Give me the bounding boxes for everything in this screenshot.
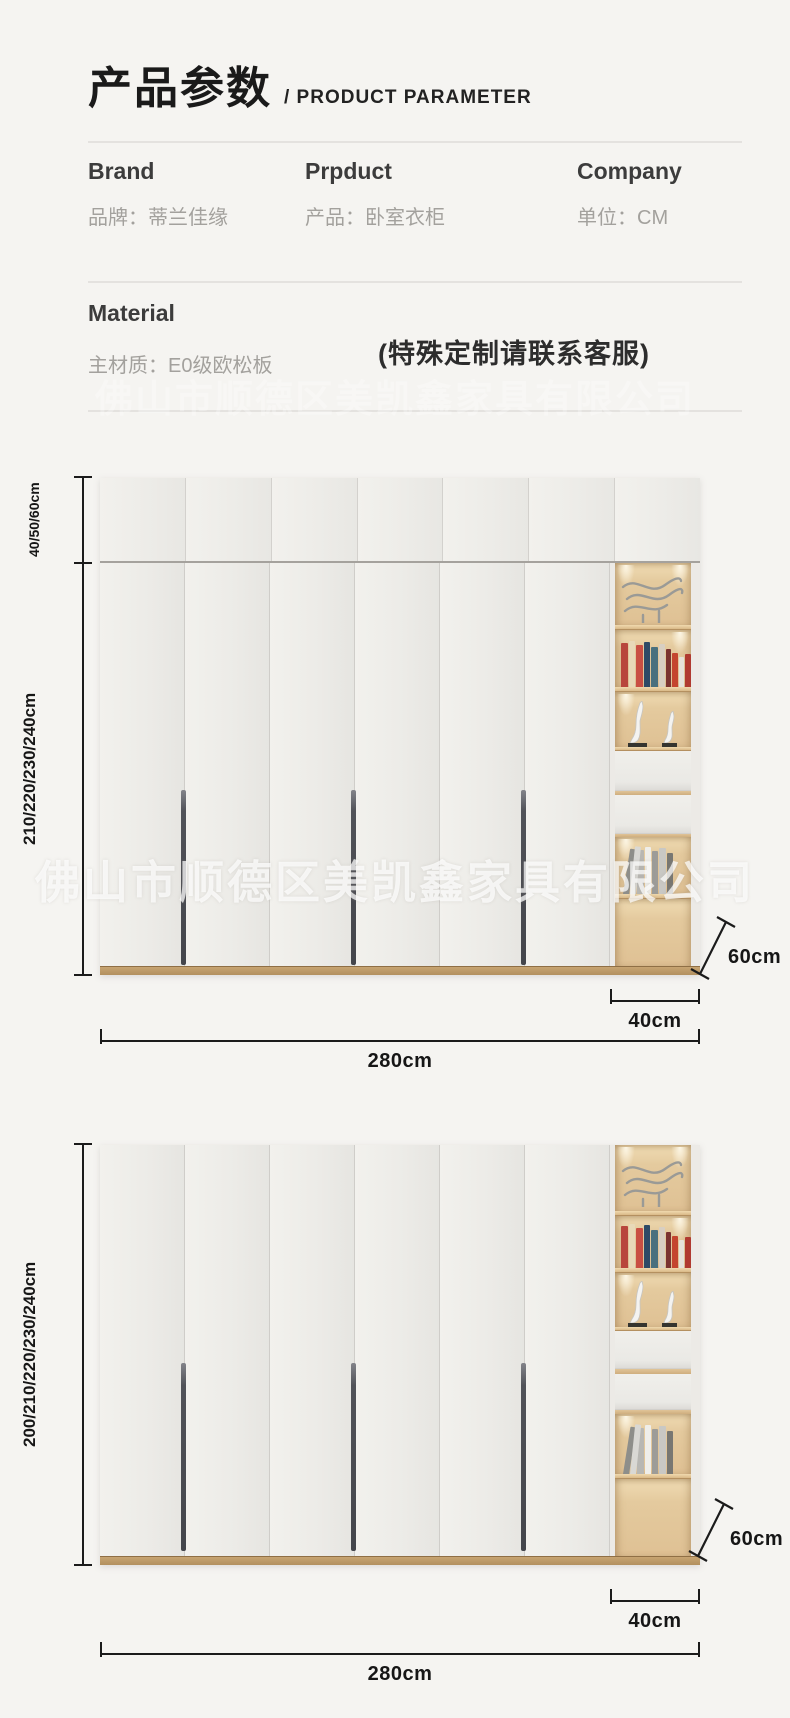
top-cabinet-door (615, 478, 700, 561)
giraffe-figurines (615, 1281, 691, 1327)
wardrobe1-open-shelf-unit (610, 563, 700, 966)
book-row-colorful (621, 1224, 691, 1268)
top-cabinet-door (529, 478, 615, 561)
wardrobe-door (270, 1145, 355, 1556)
field-brand-label: Brand (88, 158, 228, 185)
wardrobe1-body (100, 563, 700, 966)
door-handle (521, 1363, 526, 1551)
divider-under-material (88, 410, 742, 412)
shelf-cube-empty (615, 899, 691, 966)
dim-text-side-width-2: 40cm (610, 1610, 700, 1633)
wardrobe-door (355, 563, 440, 966)
dim-text-width-1: 280cm (100, 1050, 700, 1073)
dim-tick (74, 1143, 92, 1145)
dim-text-width-2: 280cm (100, 1663, 700, 1686)
dim-tick (74, 1564, 92, 1566)
shelf-cube-books (615, 630, 691, 687)
dim-label-top-height-1: 40/50/60cm (26, 477, 42, 563)
wardrobe-door (525, 1145, 610, 1556)
product-parameter-page: 产品参数 / PRODUCT PARAMETER Brand 品牌：蒂兰佳缘 P… (0, 0, 790, 1718)
wardrobe-door (355, 1145, 440, 1556)
book-row-gray (623, 846, 674, 894)
wardrobe-door (100, 563, 185, 966)
dim-tick (74, 974, 92, 976)
wardrobe-door (440, 1145, 525, 1556)
field-product: Prpduct 产品：卧室衣柜 (305, 158, 445, 230)
door-handle (351, 790, 356, 965)
wave-sculpture-icon (619, 1155, 685, 1207)
field-material-value: 主材质：E0级欧松板 (88, 349, 272, 378)
giraffe-figurine-icon (628, 701, 648, 747)
wardrobe-door (270, 563, 355, 966)
giraffe-figurine-icon (662, 1291, 678, 1327)
shelf-cube-empty (615, 1479, 691, 1556)
wardrobe-door (100, 1145, 185, 1556)
divider-under-fields (88, 281, 742, 283)
field-brand-value: 品牌：蒂兰佳缘 (88, 201, 228, 230)
wardrobe2-body (100, 1145, 700, 1556)
field-product-label: Prpduct (305, 158, 445, 185)
wave-sculpture-icon (619, 571, 685, 623)
field-company: Company 单位：CM (577, 158, 682, 230)
dim-line-side-width-2 (610, 1600, 700, 1602)
shelf-cube-figurines (615, 692, 691, 747)
top-cabinet-door (443, 478, 529, 561)
depth-dimension-line-1 (690, 916, 740, 984)
wardrobe1-doors (100, 563, 610, 966)
wardrobe1-plinth (100, 966, 700, 975)
giraffe-figurine-icon (628, 1281, 648, 1327)
dim-label-body-height-1: 210/220/230/240cm (20, 563, 40, 975)
shelf-cube-figurines (615, 1273, 691, 1327)
field-company-value: 单位：CM (577, 201, 682, 230)
dim-line-width-1 (100, 1040, 700, 1042)
field-product-value: 产品：卧室衣柜 (305, 201, 445, 230)
wardrobe-door (185, 1145, 270, 1556)
depth-dimension-line-2 (688, 1498, 738, 1566)
divider-under-title (88, 141, 742, 143)
giraffe-figurines (615, 701, 691, 747)
dim-line-side-width-1 (610, 1000, 700, 1002)
dim-line-width-2 (100, 1653, 700, 1655)
dim-tick (74, 476, 92, 478)
shelf-drawer (615, 1331, 691, 1369)
dim-text-side-width-1: 40cm (610, 1010, 700, 1033)
book-row-gray (623, 1424, 674, 1474)
wardrobe2-doors (100, 1145, 610, 1556)
wardrobe-door (440, 563, 525, 966)
shelf-cube-books-gray (615, 837, 691, 894)
door-handle (181, 1363, 186, 1551)
shelf-drawer (615, 795, 691, 834)
wardrobe-door (185, 563, 270, 966)
top-cabinet-door (358, 478, 444, 561)
top-cabinet-door (272, 478, 358, 561)
dim-label-body-height-2: 200/210/220/230/240cm (20, 1144, 40, 1565)
field-material-label: Material (88, 300, 272, 327)
wardrobe-diagram-1 (100, 478, 700, 975)
page-title-en: / PRODUCT PARAMETER (284, 87, 532, 109)
dim-line-body-height-1 (82, 563, 84, 975)
shelf-cube-books (615, 1216, 691, 1268)
door-handle (351, 1363, 356, 1551)
shelf-cube-sculpture (615, 563, 691, 625)
shelf-drawer (615, 751, 691, 791)
door-handle (521, 790, 526, 965)
door-handle (181, 790, 186, 965)
wardrobe-door (525, 563, 610, 966)
shelf-cube-books-gray (615, 1414, 691, 1474)
field-brand: Brand 品牌：蒂兰佳缘 (88, 158, 228, 230)
custom-service-note: (特殊定制请联系客服) (378, 332, 708, 371)
field-material: Material 主材质：E0级欧松板 (88, 300, 272, 378)
book-row-colorful (621, 641, 691, 687)
shelf-cube-sculpture (615, 1145, 691, 1211)
top-cabinet-door (186, 478, 272, 561)
wardrobe1-top-cabinets (100, 478, 700, 563)
dim-line-body-height-2 (82, 1144, 84, 1565)
page-title: 产品参数 / PRODUCT PARAMETER (88, 52, 532, 116)
giraffe-figurine-icon (662, 711, 678, 747)
field-company-label: Company (577, 158, 682, 185)
top-cabinet-door (100, 478, 186, 561)
page-title-cn: 产品参数 (88, 52, 272, 116)
wardrobe2-plinth (100, 1556, 700, 1565)
wardrobe2-open-shelf-unit (610, 1145, 700, 1556)
wardrobe-diagram-2 (100, 1145, 700, 1565)
shelf-drawer (615, 1374, 691, 1410)
dim-line-top-height-1 (82, 477, 84, 563)
